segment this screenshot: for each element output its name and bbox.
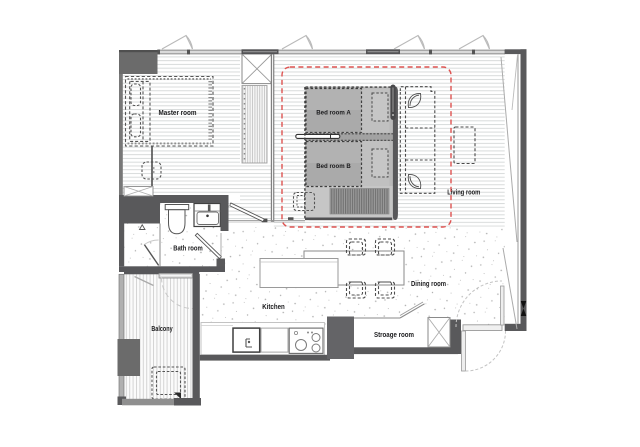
svg-text:Bed room B: Bed room B <box>316 163 351 170</box>
svg-text:Dining room: Dining room <box>411 281 446 288</box>
svg-text:Kitchen: Kitchen <box>262 304 285 311</box>
svg-text:Master room: Master room <box>159 110 197 117</box>
svg-text:Living room: Living room <box>447 189 480 196</box>
svg-text:Stroage room: Stroage room <box>374 332 414 339</box>
svg-text:Balcony: Balcony <box>151 326 172 333</box>
svg-text:Bath room: Bath room <box>173 245 203 252</box>
svg-text:Bed room A: Bed room A <box>316 110 351 117</box>
